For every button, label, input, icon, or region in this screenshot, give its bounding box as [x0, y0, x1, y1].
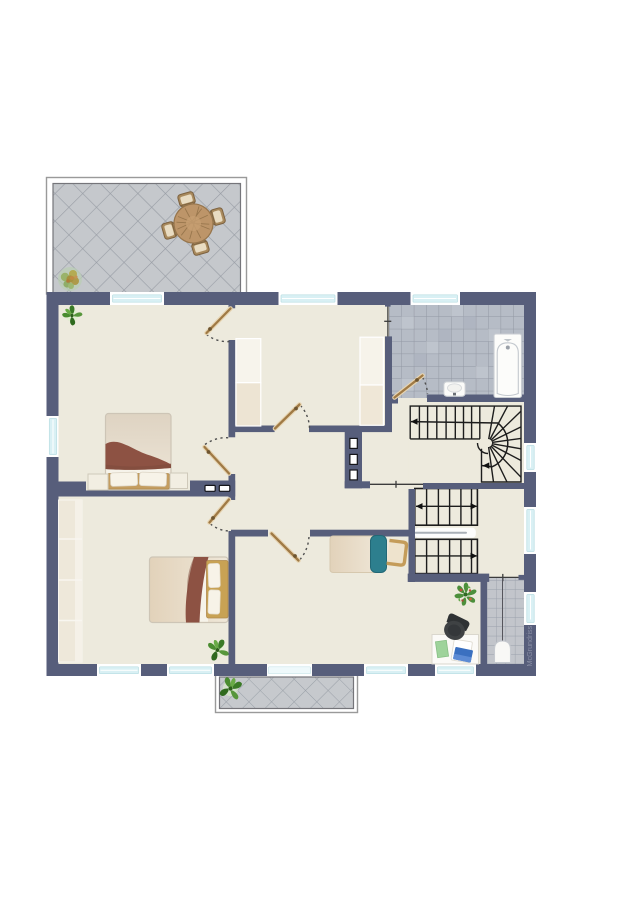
svg-text:McGrundriss: McGrundriss — [525, 625, 534, 666]
